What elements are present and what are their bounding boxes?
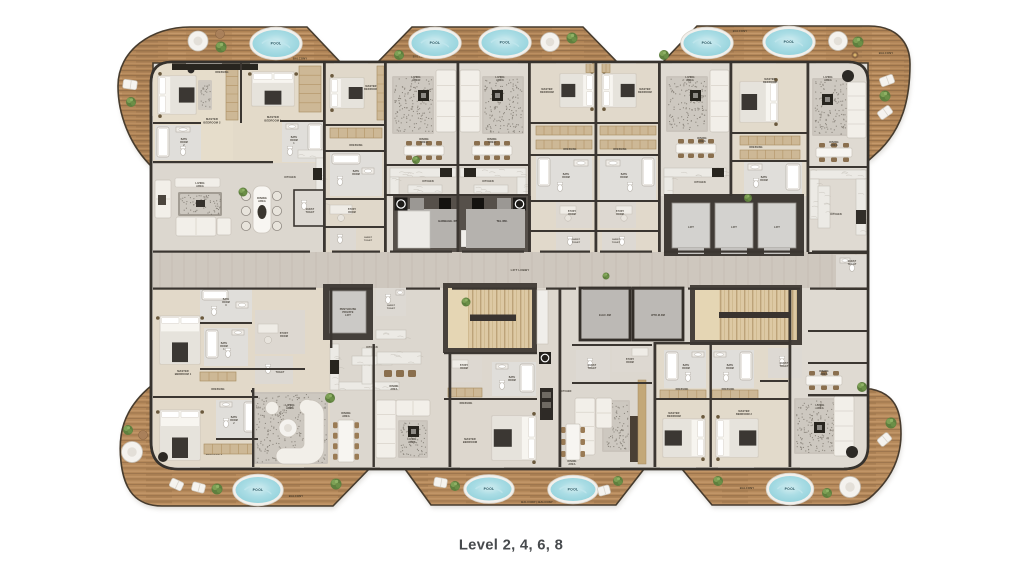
svg-text:GUESTTOILET: GUESTTOILET xyxy=(588,365,597,370)
svg-text:STUDYROOM: STUDYROOM xyxy=(280,332,289,338)
svg-text:KITCHEN: KITCHEN xyxy=(694,181,705,184)
svg-text:DRESSING: DRESSING xyxy=(215,71,228,74)
svg-text:KITCHEN: KITCHEN xyxy=(284,176,295,179)
svg-text:MASTERBEDROOM: MASTERBEDROOM xyxy=(463,437,477,444)
svg-text:STUDYROOM: STUDYROOM xyxy=(460,365,469,370)
svg-text:GUESTTOILET: GUESTTOILET xyxy=(612,239,621,244)
svg-text:BATHROOM: BATHROOM xyxy=(508,376,516,382)
svg-text:STUDYROOM: STUDYROOM xyxy=(616,211,625,216)
svg-text:MASTERBEDROOM: MASTERBEDROOM xyxy=(540,88,554,94)
svg-text:DRESSING: DRESSING xyxy=(613,148,626,151)
svg-text:DININGAREA: DININGAREA xyxy=(419,138,428,144)
svg-text:WTR.M.RM: WTR.M.RM xyxy=(651,314,665,317)
svg-text:BATHROOM: BATHROOM xyxy=(620,173,628,179)
svg-text:LIVINGAREA: LIVINGAREA xyxy=(685,75,694,82)
svg-text:LIVINGAREA: LIVINGAREA xyxy=(195,181,204,188)
svg-text:BALCONY: BALCONY xyxy=(740,486,755,490)
svg-text:LIFT: LIFT xyxy=(774,225,780,229)
svg-text:BATHROOM: BATHROOM xyxy=(352,170,360,176)
svg-text:BATHROOM: BATHROOM xyxy=(726,364,734,370)
svg-text:LIVINGAREA: LIVINGAREA xyxy=(285,403,294,410)
svg-text:LIFT: LIFT xyxy=(688,225,694,229)
svg-text:LIVINGAREA: LIVINGAREA xyxy=(408,438,417,444)
svg-text:POOL: POOL xyxy=(702,41,713,45)
svg-text:TEL RM.: TEL RM. xyxy=(496,219,507,223)
svg-text:DININGAREA: DININGAREA xyxy=(257,196,267,203)
svg-text:GUESTTOILET: GUESTTOILET xyxy=(780,363,789,368)
svg-text:GUESTTOILET: GUESTTOILET xyxy=(306,209,315,214)
svg-text:DININGAREA: DININGAREA xyxy=(829,141,838,147)
svg-text:DRESSING: DRESSING xyxy=(676,389,689,391)
svg-text:LIFT: LIFT xyxy=(731,225,737,229)
svg-text:LIFT LOBBY: LIFT LOBBY xyxy=(511,268,530,272)
svg-text:KITCHEN: KITCHEN xyxy=(422,180,433,183)
svg-text:BATHROOM: BATHROOM xyxy=(562,173,570,179)
svg-text:GUESTTOILET: GUESTTOILET xyxy=(848,261,857,266)
svg-text:ELEC.RM: ELEC.RM xyxy=(599,314,611,317)
svg-text:POOL: POOL xyxy=(253,488,264,492)
svg-text:LIVINGAREA: LIVINGAREA xyxy=(495,75,504,82)
svg-text:POOL: POOL xyxy=(784,40,795,44)
svg-text:DININGAREA: DININGAREA xyxy=(390,385,399,391)
svg-text:BALCONY | BALCONY: BALCONY | BALCONY xyxy=(521,500,553,504)
svg-text:BALCONY: BALCONY xyxy=(879,51,894,55)
svg-text:POOL: POOL xyxy=(430,41,441,45)
svg-text:LIVINGAREA: LIVINGAREA xyxy=(816,404,825,410)
svg-text:MASTERBEDROOM: MASTERBEDROOM xyxy=(667,412,681,418)
svg-text:DRESSING: DRESSING xyxy=(211,388,224,391)
svg-text:STUDYROOM: STUDYROOM xyxy=(348,209,357,214)
svg-text:DRESSING: DRESSING xyxy=(349,144,362,147)
svg-text:KITCHEN: KITCHEN xyxy=(482,180,493,183)
svg-text:DRESSING: DRESSING xyxy=(460,403,473,405)
svg-text:STUDYROOM: STUDYROOM xyxy=(568,211,577,216)
svg-text:MASTERBEDROOM: MASTERBEDROOM xyxy=(638,88,652,94)
svg-text:KITCHEN: KITCHEN xyxy=(366,346,377,349)
svg-text:DININGAREA: DININGAREA xyxy=(819,370,828,376)
svg-text:DRESSING: DRESSING xyxy=(563,148,576,151)
svg-text:STUDYROOM: STUDYROOM xyxy=(626,359,635,364)
svg-text:DININGAREA: DININGAREA xyxy=(568,460,577,466)
svg-text:DRESSING: DRESSING xyxy=(722,389,735,391)
svg-text:DININGAREA: DININGAREA xyxy=(487,138,496,144)
svg-text:KITCHEN: KITCHEN xyxy=(561,391,572,393)
svg-text:DININGAREA: DININGAREA xyxy=(341,412,350,418)
svg-text:MASTERBEDROOM: MASTERBEDROOM xyxy=(763,78,777,84)
svg-text:POOL: POOL xyxy=(568,488,579,492)
svg-text:GUESTTOILET: GUESTTOILET xyxy=(364,237,373,242)
svg-text:GUESTTOILET: GUESTTOILET xyxy=(572,239,581,244)
svg-text:POOL: POOL xyxy=(484,487,495,491)
svg-text:DININGAREA: DININGAREA xyxy=(697,137,706,143)
svg-text:KITCHEN: KITCHEN xyxy=(830,213,841,216)
svg-text:BALCONY: BALCONY xyxy=(733,29,748,33)
svg-text:DRESSING: DRESSING xyxy=(749,146,762,149)
svg-text:GARBAGE. RM: GARBAGE. RM xyxy=(438,219,458,223)
svg-text:BALCONY: BALCONY xyxy=(289,494,304,498)
svg-text:POOL: POOL xyxy=(500,41,511,45)
svg-text:Level 2, 4, 6, 8: Level 2, 4, 6, 8 xyxy=(459,538,563,554)
svg-text:BATHROOM: BATHROOM xyxy=(682,364,690,370)
svg-text:LIVINGAREA: LIVINGAREA xyxy=(823,75,832,82)
svg-text:LIVINGAREA: LIVINGAREA xyxy=(411,75,420,82)
svg-text:MASTERBEDROOM: MASTERBEDROOM xyxy=(364,85,378,91)
svg-text:POOL: POOL xyxy=(785,487,796,491)
svg-text:GUESTTOILET: GUESTTOILET xyxy=(387,305,396,310)
svg-text:BALCONY: BALCONY xyxy=(293,57,308,61)
svg-text:BATHROOM: BATHROOM xyxy=(760,176,768,182)
svg-text:POOL: POOL xyxy=(271,42,282,46)
